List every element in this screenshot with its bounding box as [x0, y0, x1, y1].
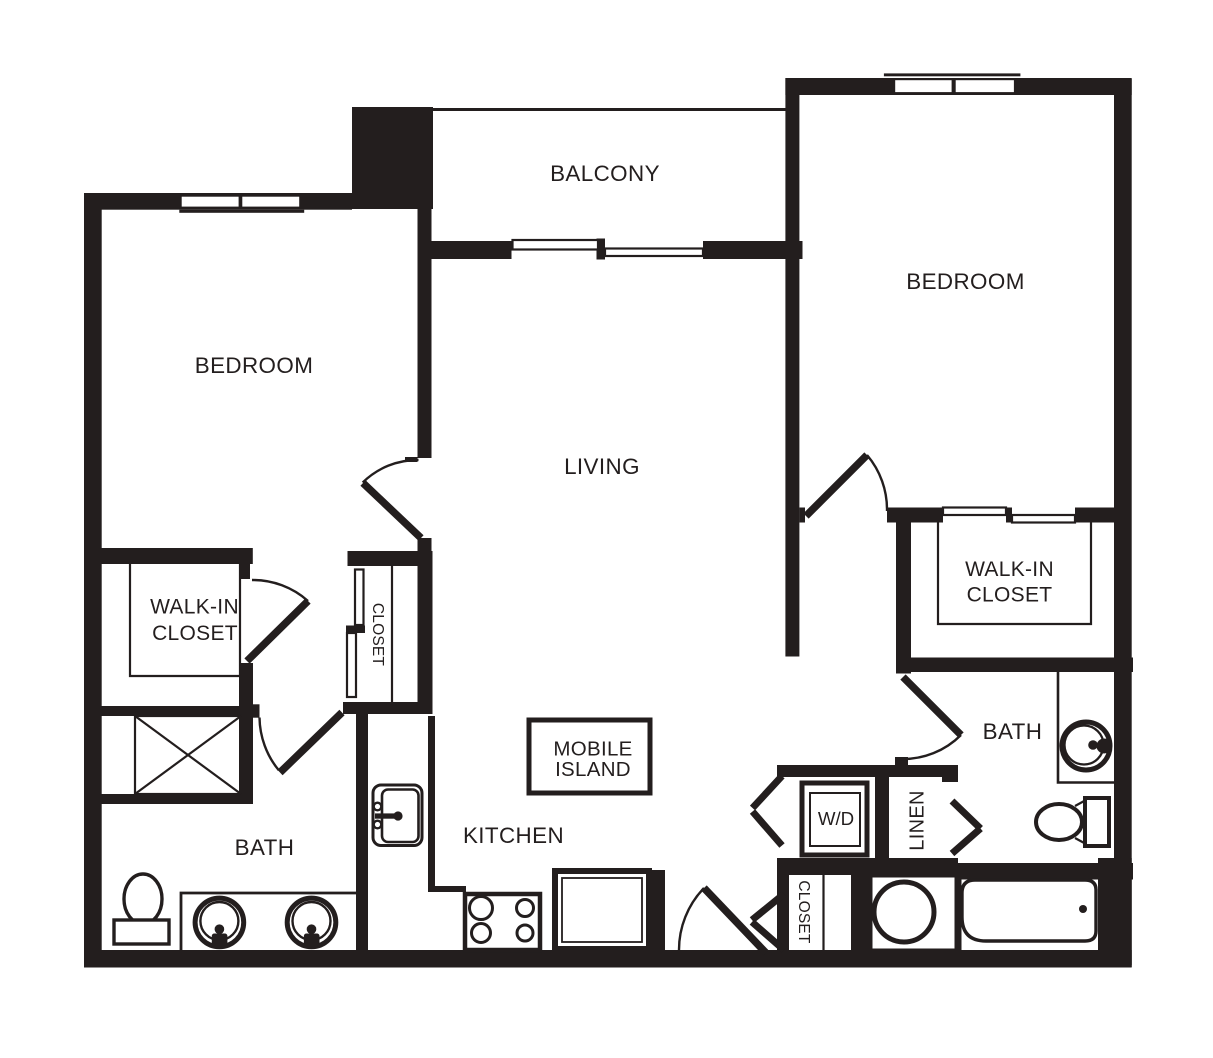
svg-text:W/D: W/D — [818, 808, 854, 829]
svg-text:WALK-IN: WALK-IN — [965, 558, 1054, 581]
svg-text:LINEN: LINEN — [907, 790, 929, 850]
svg-text:CLOSET: CLOSET — [369, 603, 386, 667]
svg-text:ISLAND: ISLAND — [555, 758, 631, 781]
svg-text:CLOSET: CLOSET — [967, 584, 1053, 607]
svg-text:CLOSET: CLOSET — [152, 622, 238, 645]
svg-text:BEDROOM: BEDROOM — [195, 353, 314, 378]
svg-text:CLOSET: CLOSET — [795, 880, 812, 944]
svg-text:BEDROOM: BEDROOM — [906, 269, 1025, 294]
svg-text:BATH: BATH — [235, 835, 295, 860]
svg-text:WALK-IN: WALK-IN — [150, 596, 239, 619]
svg-text:KITCHEN: KITCHEN — [463, 823, 564, 848]
svg-text:LIVING: LIVING — [564, 454, 640, 479]
svg-text:BATH: BATH — [983, 719, 1043, 744]
svg-text:BALCONY: BALCONY — [550, 161, 660, 186]
